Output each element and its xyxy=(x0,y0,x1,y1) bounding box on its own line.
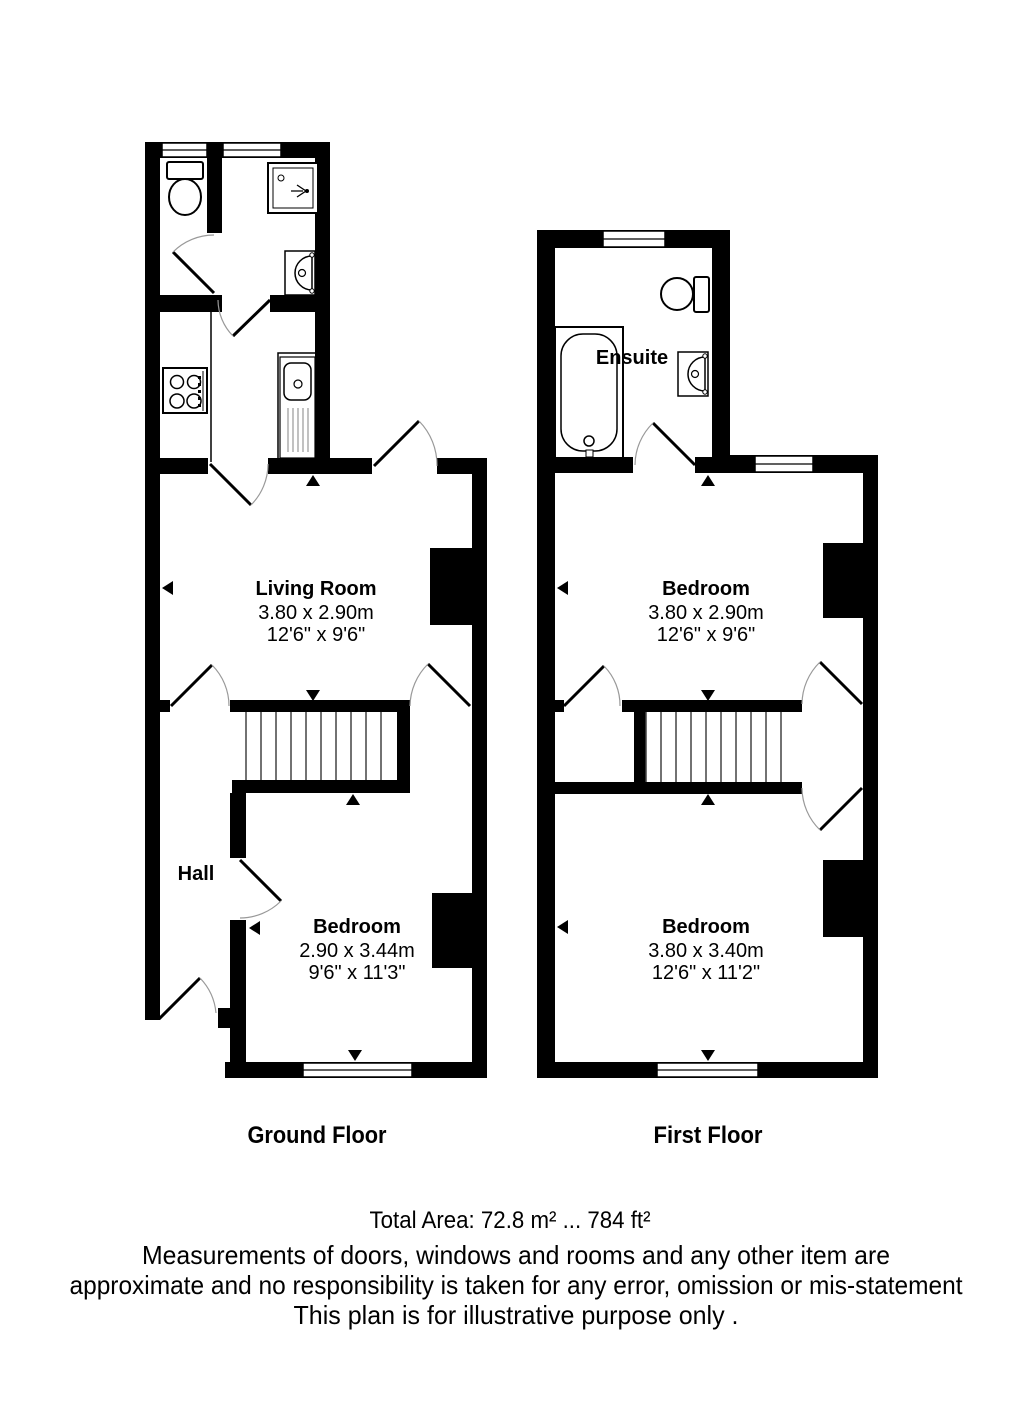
disclaimer-line-2: approximate and no responsibility is tak… xyxy=(70,1270,964,1300)
ff-bedroom2-size-imperial: 12'6" x 11'2" xyxy=(652,962,760,984)
living-room-size-metric: 3.80 x 2.90m xyxy=(258,602,374,624)
hall-label: Hall xyxy=(178,863,215,885)
window xyxy=(223,143,281,157)
basin-icon xyxy=(285,251,315,295)
total-area-text: Total Area: 72.8 m² ... 784 ft² xyxy=(370,1207,651,1234)
window xyxy=(755,456,813,472)
ground-floor-title: Ground Floor xyxy=(248,1122,387,1149)
living-room-label: Living Room xyxy=(255,578,376,600)
disclaimer-line-1: Measurements of doors, windows and rooms… xyxy=(142,1240,890,1270)
window xyxy=(303,1063,412,1077)
ff-bedroom1-size-imperial: 12'6" x 9'6" xyxy=(657,624,756,646)
window xyxy=(162,143,207,157)
basin-icon xyxy=(678,352,708,396)
living-room-size-imperial: 12'6" x 9'6" xyxy=(267,624,366,646)
toilet-icon xyxy=(167,162,203,215)
first-floor-title: First Floor xyxy=(654,1122,763,1149)
toilet-icon xyxy=(661,277,709,312)
gf-bedroom-label: Bedroom xyxy=(313,916,401,938)
chimney-breast xyxy=(430,548,472,625)
ff-bedroom2-label: Bedroom xyxy=(662,916,750,938)
chimney-breast xyxy=(432,893,472,968)
window xyxy=(603,231,665,247)
gf-bedroom-size-imperial: 9'6" x 11'3" xyxy=(308,962,405,984)
shower-icon xyxy=(268,163,318,213)
floorplan-svg: Living Room 3.80 x 2.90m 12'6" x 9'6" Ha… xyxy=(0,0,1024,1421)
chimney-breast xyxy=(823,860,863,937)
floorplan-page: Living Room 3.80 x 2.90m 12'6" x 9'6" Ha… xyxy=(0,0,1024,1421)
hob-icon xyxy=(163,368,207,413)
ff-bedroom1-size-metric: 3.80 x 2.90m xyxy=(648,602,764,624)
sink-icon xyxy=(280,357,315,458)
disclaimer-line-3: This plan is for illustrative purpose on… xyxy=(294,1300,739,1330)
ff-bedroom1-label: Bedroom xyxy=(662,578,750,600)
gf-bedroom-size-metric: 2.90 x 3.44m xyxy=(299,940,415,962)
window xyxy=(657,1063,758,1077)
ff-bedroom2-size-metric: 3.80 x 3.40m xyxy=(648,940,764,962)
ensuite-label: Ensuite xyxy=(596,347,668,369)
chimney-breast xyxy=(823,543,863,618)
